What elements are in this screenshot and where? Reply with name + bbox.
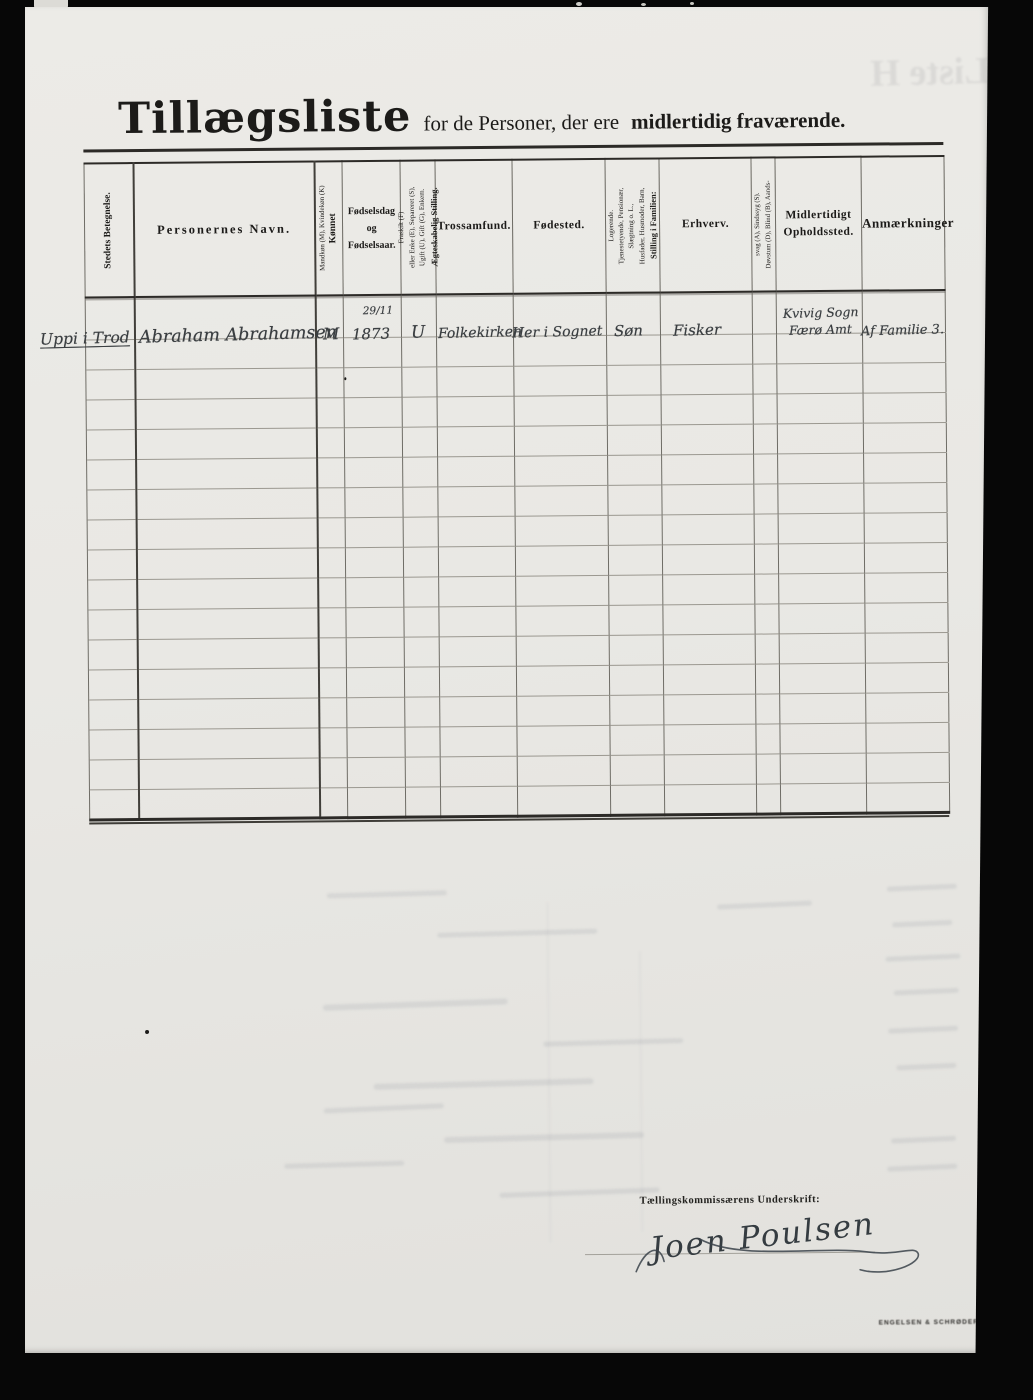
col-header-stedets-betegnelse: Stedets Betegnelse.	[84, 163, 134, 297]
cell-dovstum	[752, 291, 776, 333]
col-header-personernes-navn: Personernes Navn.	[133, 161, 315, 297]
census-table: Stedets Betegnelse. Personernes Navn. Ma…	[83, 155, 950, 821]
cell-anm: Af Familie 3.	[862, 290, 945, 333]
bleedthrough-mark	[717, 900, 812, 909]
table-row-entry: Uppi i Trod Abraham Abrahamsen M 29/11 1…	[85, 290, 945, 340]
form-title: Tillægsliste for de Personer, der ere mi…	[118, 88, 846, 144]
signature-label: Tællingskommissærens Underskrift:	[640, 1194, 821, 1207]
scanned-census-page: Liste H Tillægsliste for de Personer, de…	[0, 0, 1033, 1400]
ink-speck	[344, 377, 346, 380]
col-header-aegteskabelig-stilling: Fraskilt (F) eller Enke (E), Separeret (…	[400, 160, 436, 294]
col-header-stilling-i-familien: Logerende. Tjenestetyende, Pensionær, Sl…	[605, 158, 660, 292]
bleedthrough-mark	[543, 1038, 683, 1047]
col-header-dovstum-blind: svag (A), Sindssyg (S). Døvstum (D), Bli…	[751, 157, 776, 291]
col-header-midlertidigt-opholdssted: Midlertidigt Opholdssted.	[775, 157, 862, 292]
title-rule	[83, 142, 943, 153]
col-header-anmaerkninger: Anmærkninger	[861, 156, 945, 291]
cell-sted: Uppi i Trod	[85, 297, 134, 339]
col-header-erhverv: Erhverv.	[659, 158, 752, 293]
bleedthrough-mark	[324, 1103, 444, 1113]
bleedthrough-mark	[896, 1063, 956, 1071]
cell-fodsel: 29/11 1873	[343, 295, 401, 338]
form-title-regular: for de Personer, der ere	[423, 110, 619, 137]
cell-ophold: Kvivig Sogn Færø Amt	[776, 291, 862, 334]
printed-form: Liste H Tillægsliste for de Personer, de…	[19, 0, 997, 1353]
header-row: Stedets Betegnelse. Personernes Navn. Ma…	[84, 156, 945, 297]
bleedthrough-mark	[885, 954, 960, 962]
empty-rows	[86, 332, 950, 819]
ink-speck	[145, 1030, 149, 1034]
cell-kon: M	[315, 295, 343, 337]
scan-speck	[641, 3, 646, 6]
cell-navn: Abraham Abrahamsen	[134, 295, 315, 339]
form-title-bold: midlertidig fraværende.	[631, 108, 845, 135]
bleedthrough-mark	[891, 1136, 956, 1144]
bleedthrough-mark	[887, 1164, 957, 1172]
col-header-trossamfund: Trossamfund.	[435, 160, 513, 295]
bleedthrough-mark	[284, 1161, 404, 1169]
bleedthrough-mark	[887, 884, 957, 892]
bleedthrough-mark	[327, 890, 447, 898]
col-header-fodested: Fødested.	[512, 159, 606, 294]
form-title-main: Tillægsliste	[118, 92, 412, 145]
signature-flourish	[630, 1207, 931, 1290]
bleedthrough-mark	[888, 1026, 958, 1034]
bleedthrough-mark	[437, 929, 597, 938]
bleedthrough-mark	[499, 1187, 659, 1198]
cell-erhverv: Fisker	[660, 292, 752, 335]
bleedthrough-mark	[374, 1078, 594, 1090]
bleedthrough-mark	[894, 988, 959, 996]
cell-fodested: Her i Sognet	[513, 293, 606, 336]
paper-sheet: Liste H Tillægsliste for de Personer, de…	[25, 7, 991, 1353]
printer-mark: ENGELSEN & SCHRØDER	[879, 1319, 979, 1327]
table-row-empty	[89, 782, 949, 820]
cell-tro: Folkekirken	[436, 294, 513, 337]
scan-speck	[576, 2, 582, 6]
col-header-fodselsdag: Fødselsdag og Fødselsaar.	[342, 161, 401, 296]
cell-aegteskab: U	[401, 294, 436, 336]
col-header-konnet: Mandkøn (M), Kvindekøn (K) Kønnet	[314, 161, 343, 295]
bleedthrough-mark	[444, 1132, 644, 1143]
bleedthrough-mark	[323, 998, 508, 1010]
scan-speck	[690, 2, 694, 5]
bleedthrough-mark	[892, 920, 952, 928]
cell-familie: Søn	[606, 292, 660, 334]
